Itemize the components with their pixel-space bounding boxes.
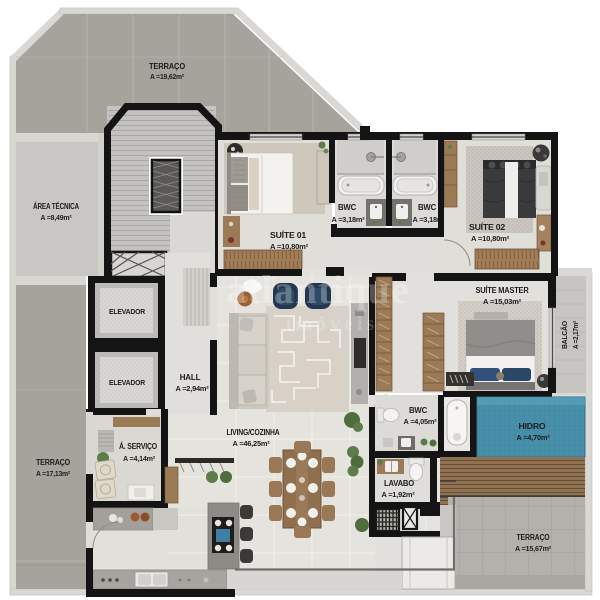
svg-text:TERRAÇO: TERRAÇO (36, 458, 70, 467)
svg-text:imóveis: imóveis (286, 313, 378, 335)
svg-text:atlantique: atlantique (226, 267, 409, 312)
svg-text:SUÍTE 02: SUÍTE 02 (469, 223, 506, 232)
svg-text:A =4,14m²: A =4,14m² (123, 454, 156, 463)
svg-text:A =2,17m²: A =2,17m² (573, 320, 580, 349)
svg-text:A =46,25m²: A =46,25m² (233, 439, 271, 448)
svg-text:A =4,05m²: A =4,05m² (404, 417, 438, 426)
svg-text:LIVING/COZINHA: LIVING/COZINHA (227, 428, 280, 437)
svg-text:A =1,92m²: A =1,92m² (382, 490, 416, 499)
svg-text:SUÍTE 01: SUÍTE 01 (270, 231, 307, 240)
svg-text:LAVABO: LAVABO (384, 479, 414, 488)
svg-text:SUÍTE MASTER: SUÍTE MASTER (476, 286, 529, 295)
svg-text:HALL: HALL (180, 373, 201, 382)
svg-text:BWC: BWC (418, 203, 436, 212)
svg-text:A =4,70m²: A =4,70m² (517, 433, 551, 442)
svg-text:Á. SERVIÇO: Á. SERVIÇO (119, 442, 157, 451)
svg-text:TERRAÇO: TERRAÇO (517, 533, 550, 542)
svg-text:A =10,80m²: A =10,80m² (270, 242, 309, 251)
svg-text:ELEVADOR: ELEVADOR (109, 378, 146, 387)
svg-text:A =2,94m²: A =2,94m² (176, 384, 210, 393)
svg-text:ELEVADOR: ELEVADOR (109, 307, 146, 316)
svg-text:BWC: BWC (409, 406, 427, 415)
svg-text:HIDRO: HIDRO (519, 422, 546, 431)
svg-text:A =17,13m²: A =17,13m² (36, 469, 71, 478)
svg-text:BWC: BWC (338, 203, 356, 212)
svg-text:A =8,49m²: A =8,49m² (41, 213, 73, 222)
svg-text:A =19,62m²: A =19,62m² (150, 72, 185, 81)
svg-text:BALCÃO: BALCÃO (560, 321, 569, 349)
svg-text:A =10,80m²: A =10,80m² (471, 234, 510, 243)
svg-text:A =3,18m²: A =3,18m² (332, 215, 366, 224)
svg-text:A =15,03m²: A =15,03m² (483, 297, 522, 306)
svg-text:ÁREA TÉCNICA: ÁREA TÉCNICA (33, 202, 79, 211)
svg-text:TERRAÇO: TERRAÇO (149, 62, 185, 71)
svg-text:A =15,67m²: A =15,67m² (515, 544, 552, 553)
